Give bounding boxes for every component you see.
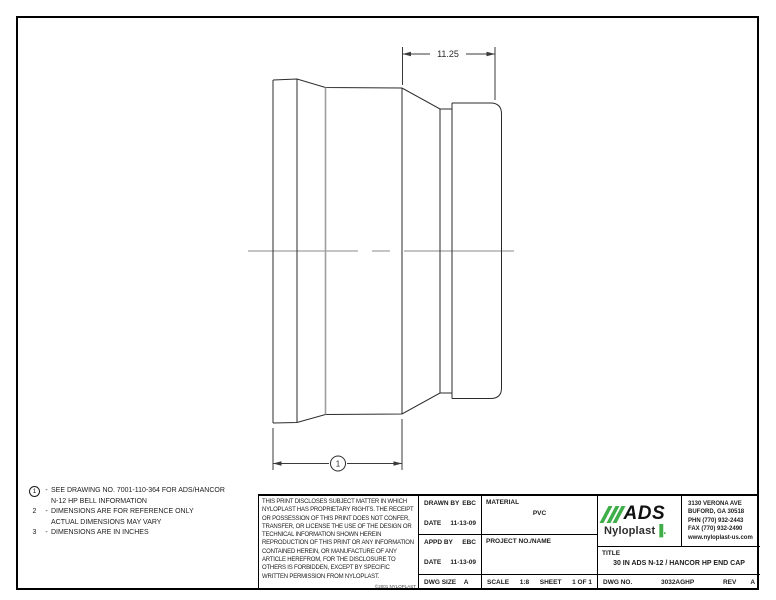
appd-by-value: EBC — [462, 539, 476, 546]
dwg-no-value: 3032AGHP — [661, 579, 694, 586]
note-1-line-1: SEE DRAWING NO. 7001-110-364 FOR ADS/HAN… — [51, 486, 259, 497]
date-value-2: 11-13-09 — [450, 559, 476, 566]
drawn-by-cell: DRAWN BYEBC DATE11-13-09 — [419, 496, 482, 535]
date-label-2: DATE — [424, 559, 441, 566]
balloon-arrow-left — [273, 461, 282, 466]
legal-notice-text: THIS PRINT DISCLOSES SUBJECT MATTER IN W… — [262, 498, 415, 581]
note-3: 3 - DIMENSIONS ARE IN INCHES — [27, 528, 259, 539]
company-address: 3130 VERONA AVE BUFORD, GA 30518 PHN (77… — [688, 500, 753, 542]
dwg-size-cell: DWG SIZEA — [419, 575, 482, 590]
note-2-line-1: DIMENSIONS ARE FOR REFERENCE ONLY — [51, 507, 259, 518]
dwg-size-label: DWG SIZE — [424, 579, 456, 586]
drawn-by-value: EBC — [462, 500, 476, 507]
dim-arrow-left — [403, 52, 412, 57]
dim-arrow-right — [487, 52, 496, 57]
sheet-value: 1 OF 1 — [572, 579, 592, 586]
scale-label: SCALE — [487, 579, 509, 586]
approved-by-cell: APPD BYEBC DATE11-13-09 — [419, 535, 482, 575]
material-value: PVC — [482, 510, 597, 517]
company-cell: ADS Nyloplast▐. 3130 VERONA AVE BUFORD, … — [598, 496, 760, 547]
note-1-line-2: N-12 HP BELL INFORMATION — [51, 497, 259, 508]
dwg-no-cell: DWG NO. 3032AGHP REV A — [598, 575, 760, 590]
material-cell: MATERIAL PVC — [482, 496, 598, 535]
copyright-text: ©2001 NYLOPLAST — [375, 584, 416, 589]
note-2: 2 - DIMENSIONS ARE FOR REFERENCE ONLY AC… — [27, 507, 259, 528]
address-line-5: www.nyloplast-us.com — [688, 534, 753, 542]
note-3-dash: - — [42, 528, 51, 539]
address-line-1: 3130 VERONA AVE — [688, 500, 753, 508]
dwg-size-value: A — [464, 579, 469, 586]
rev-label: REV — [723, 579, 736, 586]
logo-ads-text: ADS — [624, 504, 666, 523]
project-label: PROJECT NO./NAME — [486, 538, 551, 545]
note-1-balloon: 1 — [29, 486, 40, 497]
drawn-by-label: DRAWN BY — [424, 500, 459, 507]
note-2-dash: - — [42, 507, 51, 528]
end-cap-outline-bottom — [273, 393, 452, 423]
title-label: TITLE — [602, 550, 620, 557]
sheet-label: SHEET — [540, 579, 562, 586]
note-2-number: 2 — [27, 507, 42, 528]
dim-text-cap-length: 11.25 — [437, 49, 459, 59]
address-line-2: BUFORD, GA 30518 — [688, 508, 753, 516]
dwg-no-label: DWG NO. — [603, 579, 632, 586]
balloon-arrow-right — [394, 461, 403, 466]
note-1-dash: - — [42, 486, 51, 507]
address-divider — [681, 496, 682, 546]
logo-accent-mark-icon: ▐. — [655, 525, 666, 537]
date-value-1: 11-13-09 — [450, 520, 476, 527]
title-block: THIS PRINT DISCLOSES SUBJECT MATTER IN W… — [258, 494, 759, 590]
title-cell: TITLE 30 IN ADS N-12 / HANCOR HP END CAP — [598, 547, 760, 575]
end-cap-outline-top — [273, 79, 452, 109]
company-logo: ADS Nyloplast▐. — [604, 501, 676, 541]
scale-sheet-cell: SCALE 1:8 SHEET 1 OF 1 — [482, 575, 598, 590]
balloon-number: 1 — [336, 459, 341, 468]
note-3-number: 3 — [27, 528, 42, 539]
note-3-line-1: DIMENSIONS ARE IN INCHES — [51, 528, 259, 539]
note-2-line-2: ACTUAL DIMENSIONS MAY VARY — [51, 518, 259, 529]
drawing-title: 30 IN ADS N-12 / HANCOR HP END CAP — [598, 560, 760, 567]
material-label: MATERIAL — [486, 499, 519, 506]
date-label-1: DATE — [424, 520, 441, 527]
legal-notice-cell: THIS PRINT DISCLOSES SUBJECT MATTER IN W… — [259, 496, 419, 590]
notes-list: 1 - SEE DRAWING NO. 7001-110-364 FOR ADS… — [27, 486, 259, 539]
scale-value: 1:8 — [520, 579, 529, 586]
address-line-4: FAX (770) 932-2490 — [688, 525, 753, 533]
appd-by-label: APPD BY — [424, 539, 453, 546]
project-cell: PROJECT NO./NAME — [482, 535, 598, 575]
address-line-3: PHN (770) 932-2443 — [688, 517, 753, 525]
note-1: 1 - SEE DRAWING NO. 7001-110-364 FOR ADS… — [27, 486, 259, 507]
logo-nyloplast-text: Nyloplast — [604, 525, 655, 537]
rev-value: A — [750, 579, 755, 586]
